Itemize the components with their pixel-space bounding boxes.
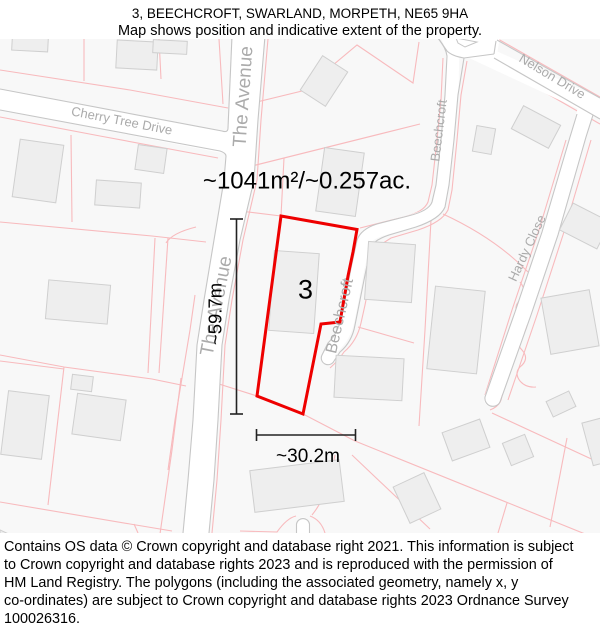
svg-text:3: 3 [298,275,313,305]
svg-text:Contains OS data © Crown copyr: Contains OS data © Crown copyright and d… [4,539,573,555]
svg-text:to Crown copyright and databas: to Crown copyright and database rights 2… [4,557,554,573]
svg-text:100026316.: 100026316. [4,611,80,625]
svg-text:HM Land Registry. The polygons: HM Land Registry. The polygons (includin… [4,575,519,591]
svg-text:3, BEECHCROFT, SWARLAND, MORPE: 3, BEECHCROFT, SWARLAND, MORPETH, NE65 9… [132,6,468,21]
svg-text:~59.7m: ~59.7m [205,283,226,345]
svg-text:~1041m²/~0.257ac.: ~1041m²/~0.257ac. [203,168,411,195]
svg-text:Map shows position and indicat: Map shows position and indicative extent… [118,23,482,39]
svg-text:co-ordinates) are subject to C: co-ordinates) are subject to Crown copyr… [4,593,570,609]
svg-text:~30.2m: ~30.2m [276,446,340,467]
